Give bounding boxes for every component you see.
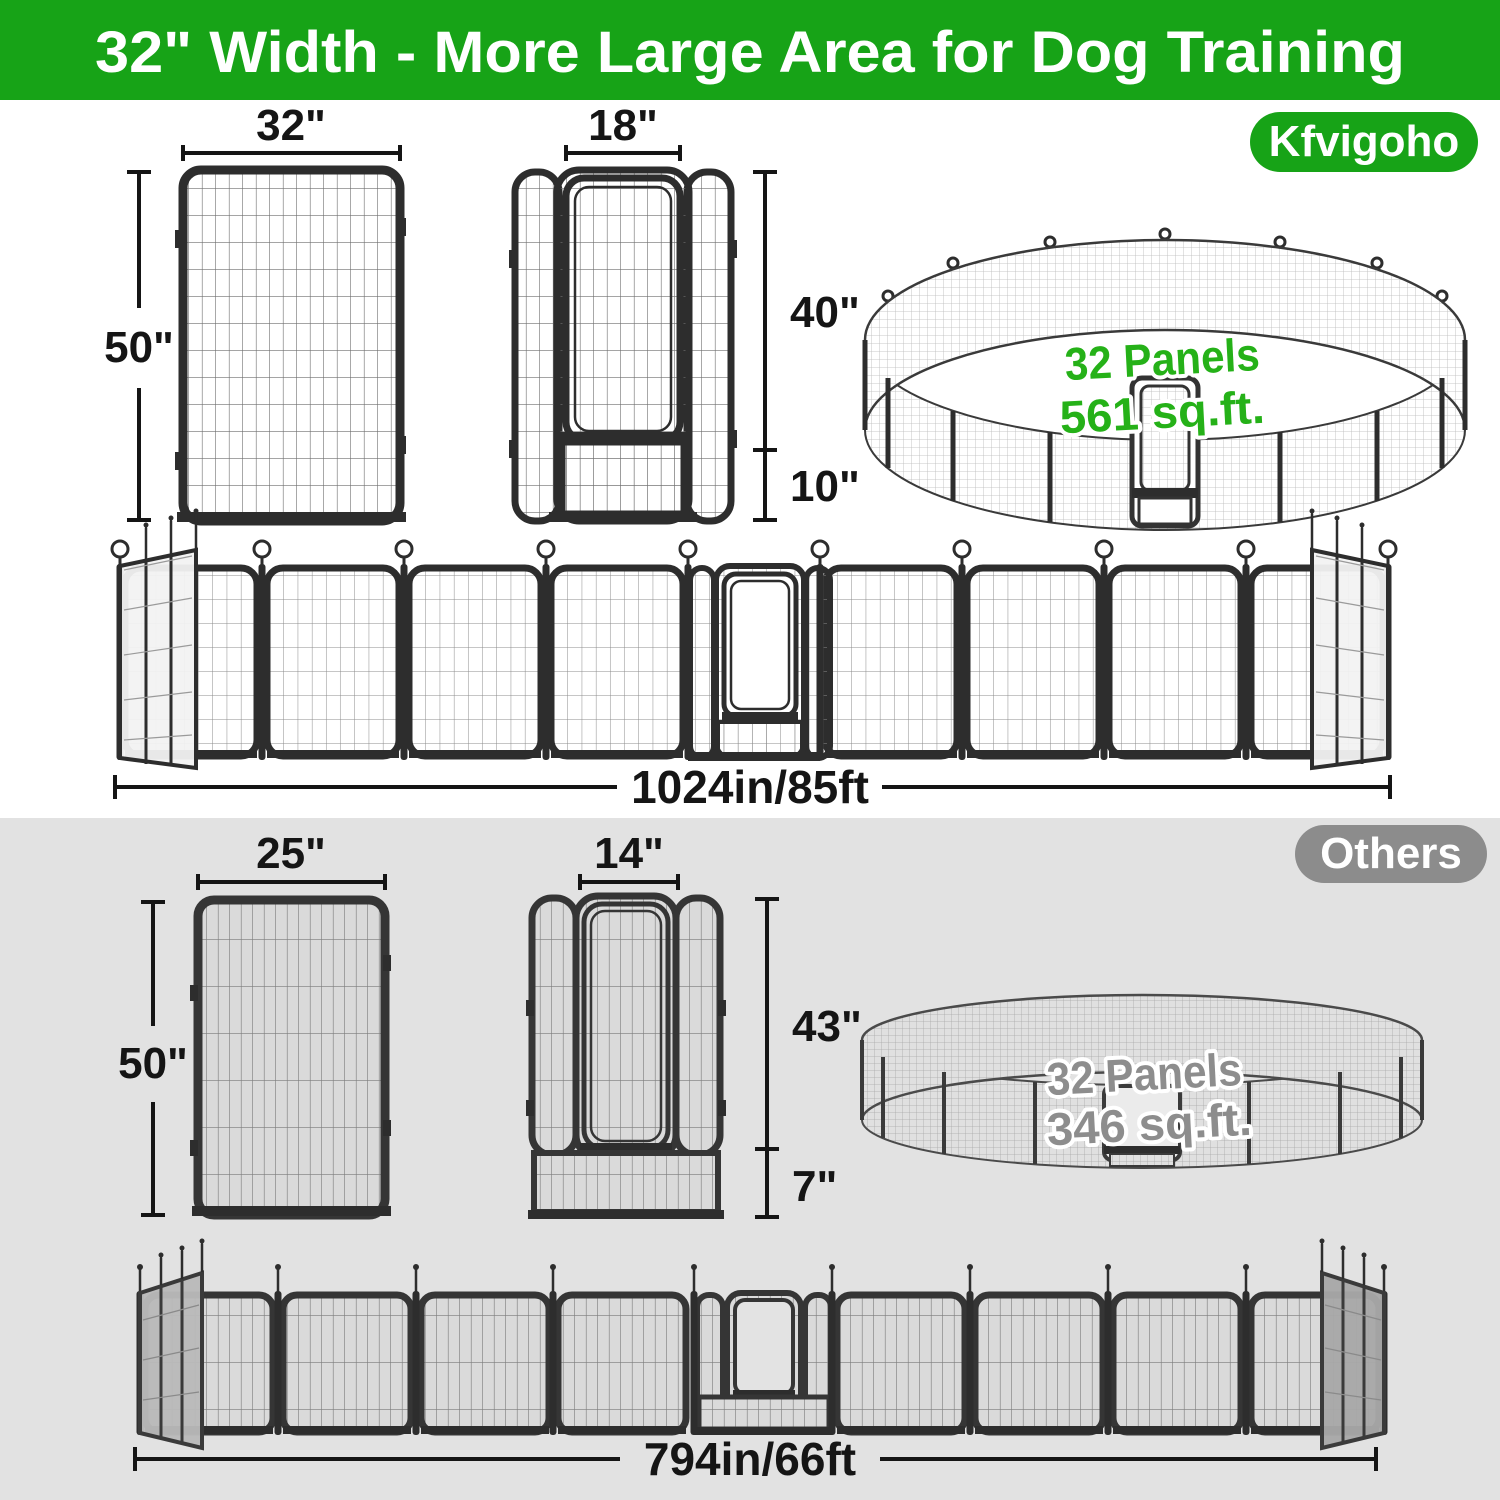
others-badge-label: Others [1320,829,1462,878]
others-pen-area-label: 346 sq.ft. [1045,1093,1252,1156]
kfvigoho-pen-panels-label: 32 Panels [1063,328,1260,390]
brand-badge-label: Kfvigoho [1269,117,1460,166]
kfvigoho-panel-width-label: 32" [256,101,326,150]
page-title: 32" Width - More Large Area for Dog Trai… [95,20,1405,85]
kfvigoho-door-height-label: 40" [790,288,860,337]
others-row-length-label: 794in/66ft [644,1433,856,1485]
others-door-width-label: 14" [594,829,664,878]
others-door-height-label: 43" [792,1002,862,1051]
others-panel-height-label: 50" [118,1039,188,1088]
others-row-door-panel [694,1293,832,1435]
others-panel-width-label: 25" [256,829,326,878]
brand-badge: Kfvigoho [1250,112,1478,172]
kfvigoho-pen-area-label: 561 sq.ft. [1058,381,1265,444]
infographic-canvas: 32" Width - More Large Area for Dog Trai… [0,0,1500,1500]
others-badge: Others [1295,825,1487,883]
kfvigoho-bottom-height-label: 10" [790,462,860,511]
product-infographic: 32" Width - More Large Area for Dog Trai… [0,0,1500,1500]
kfvigoho-row-length-label: 1024in/85ft [631,761,869,813]
others-bottom-height-label: 7" [792,1162,837,1211]
row-door-panel [688,566,830,761]
kfvigoho-door-width-label: 18" [588,101,658,150]
header-banner: 32" Width - More Large Area for Dog Trai… [0,0,1500,100]
kfvigoho-panel-height-label: 50" [104,323,174,372]
others-pen-diagram: 32 Panels 346 sq.ft. [862,995,1422,1168]
